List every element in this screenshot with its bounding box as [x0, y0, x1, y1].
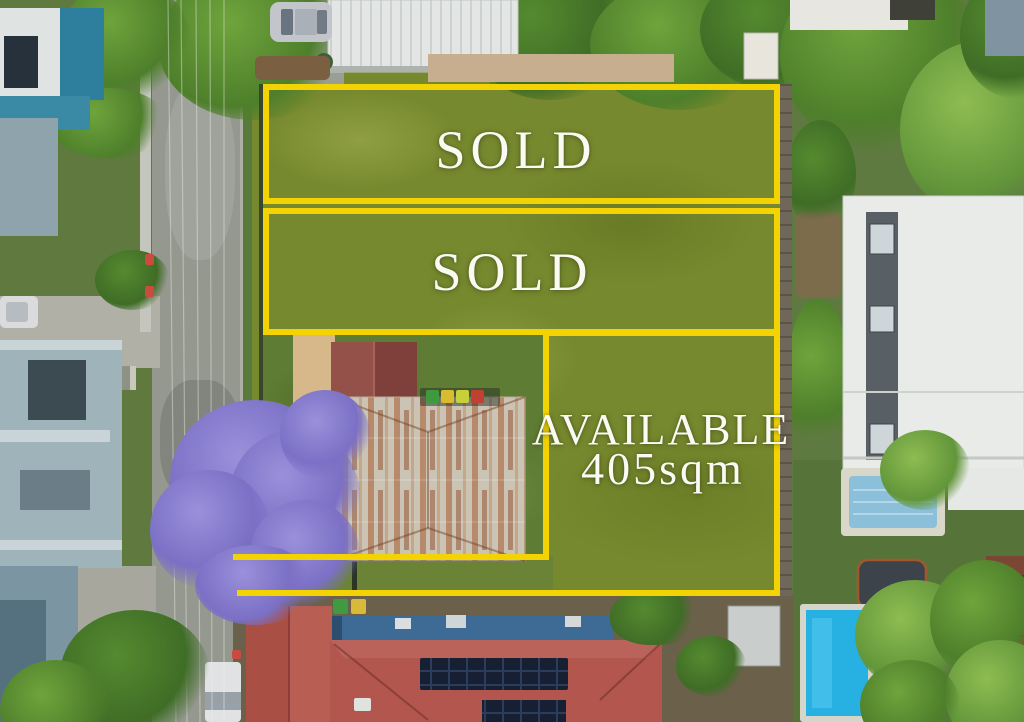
solar-array-1	[420, 658, 568, 690]
house-mid-left	[0, 340, 122, 568]
bush-bottom-mid-2	[676, 636, 746, 696]
main-red-roof	[330, 640, 662, 722]
solar-panel	[4, 36, 38, 88]
sold-label-lot-1: SOLD	[435, 123, 596, 177]
jacaranda-tree	[195, 545, 315, 625]
aerial-photo: SOLD SOLD AVAILABLE 405sqm	[0, 0, 1024, 722]
jacaranda-tree	[280, 390, 370, 480]
dark-shed-top-right	[890, 0, 935, 20]
east-lot-fence	[780, 84, 792, 596]
house-top-left	[0, 8, 104, 130]
wheelie-bins-street	[333, 599, 366, 614]
white-car	[0, 296, 38, 328]
available-area-label: 405sqm	[581, 446, 745, 492]
wheelie-bins-front	[420, 388, 500, 406]
bush-bottom-mid-1	[610, 590, 700, 645]
blue-roof-strip	[332, 615, 614, 642]
blue-roof-corner-ne	[985, 0, 1024, 56]
garden-bed-top	[255, 56, 330, 80]
silver-car	[270, 2, 332, 42]
palm-top-of-pool	[880, 430, 970, 510]
gravel-strip	[428, 54, 674, 82]
white-ute	[205, 662, 241, 722]
maroon-shed	[331, 342, 417, 402]
house-left-grey-roof	[0, 118, 58, 236]
solar-array-2	[482, 700, 566, 722]
skylight	[354, 698, 371, 711]
sold-label-lot-2: SOLD	[431, 245, 592, 299]
white-shed-top	[744, 33, 778, 79]
